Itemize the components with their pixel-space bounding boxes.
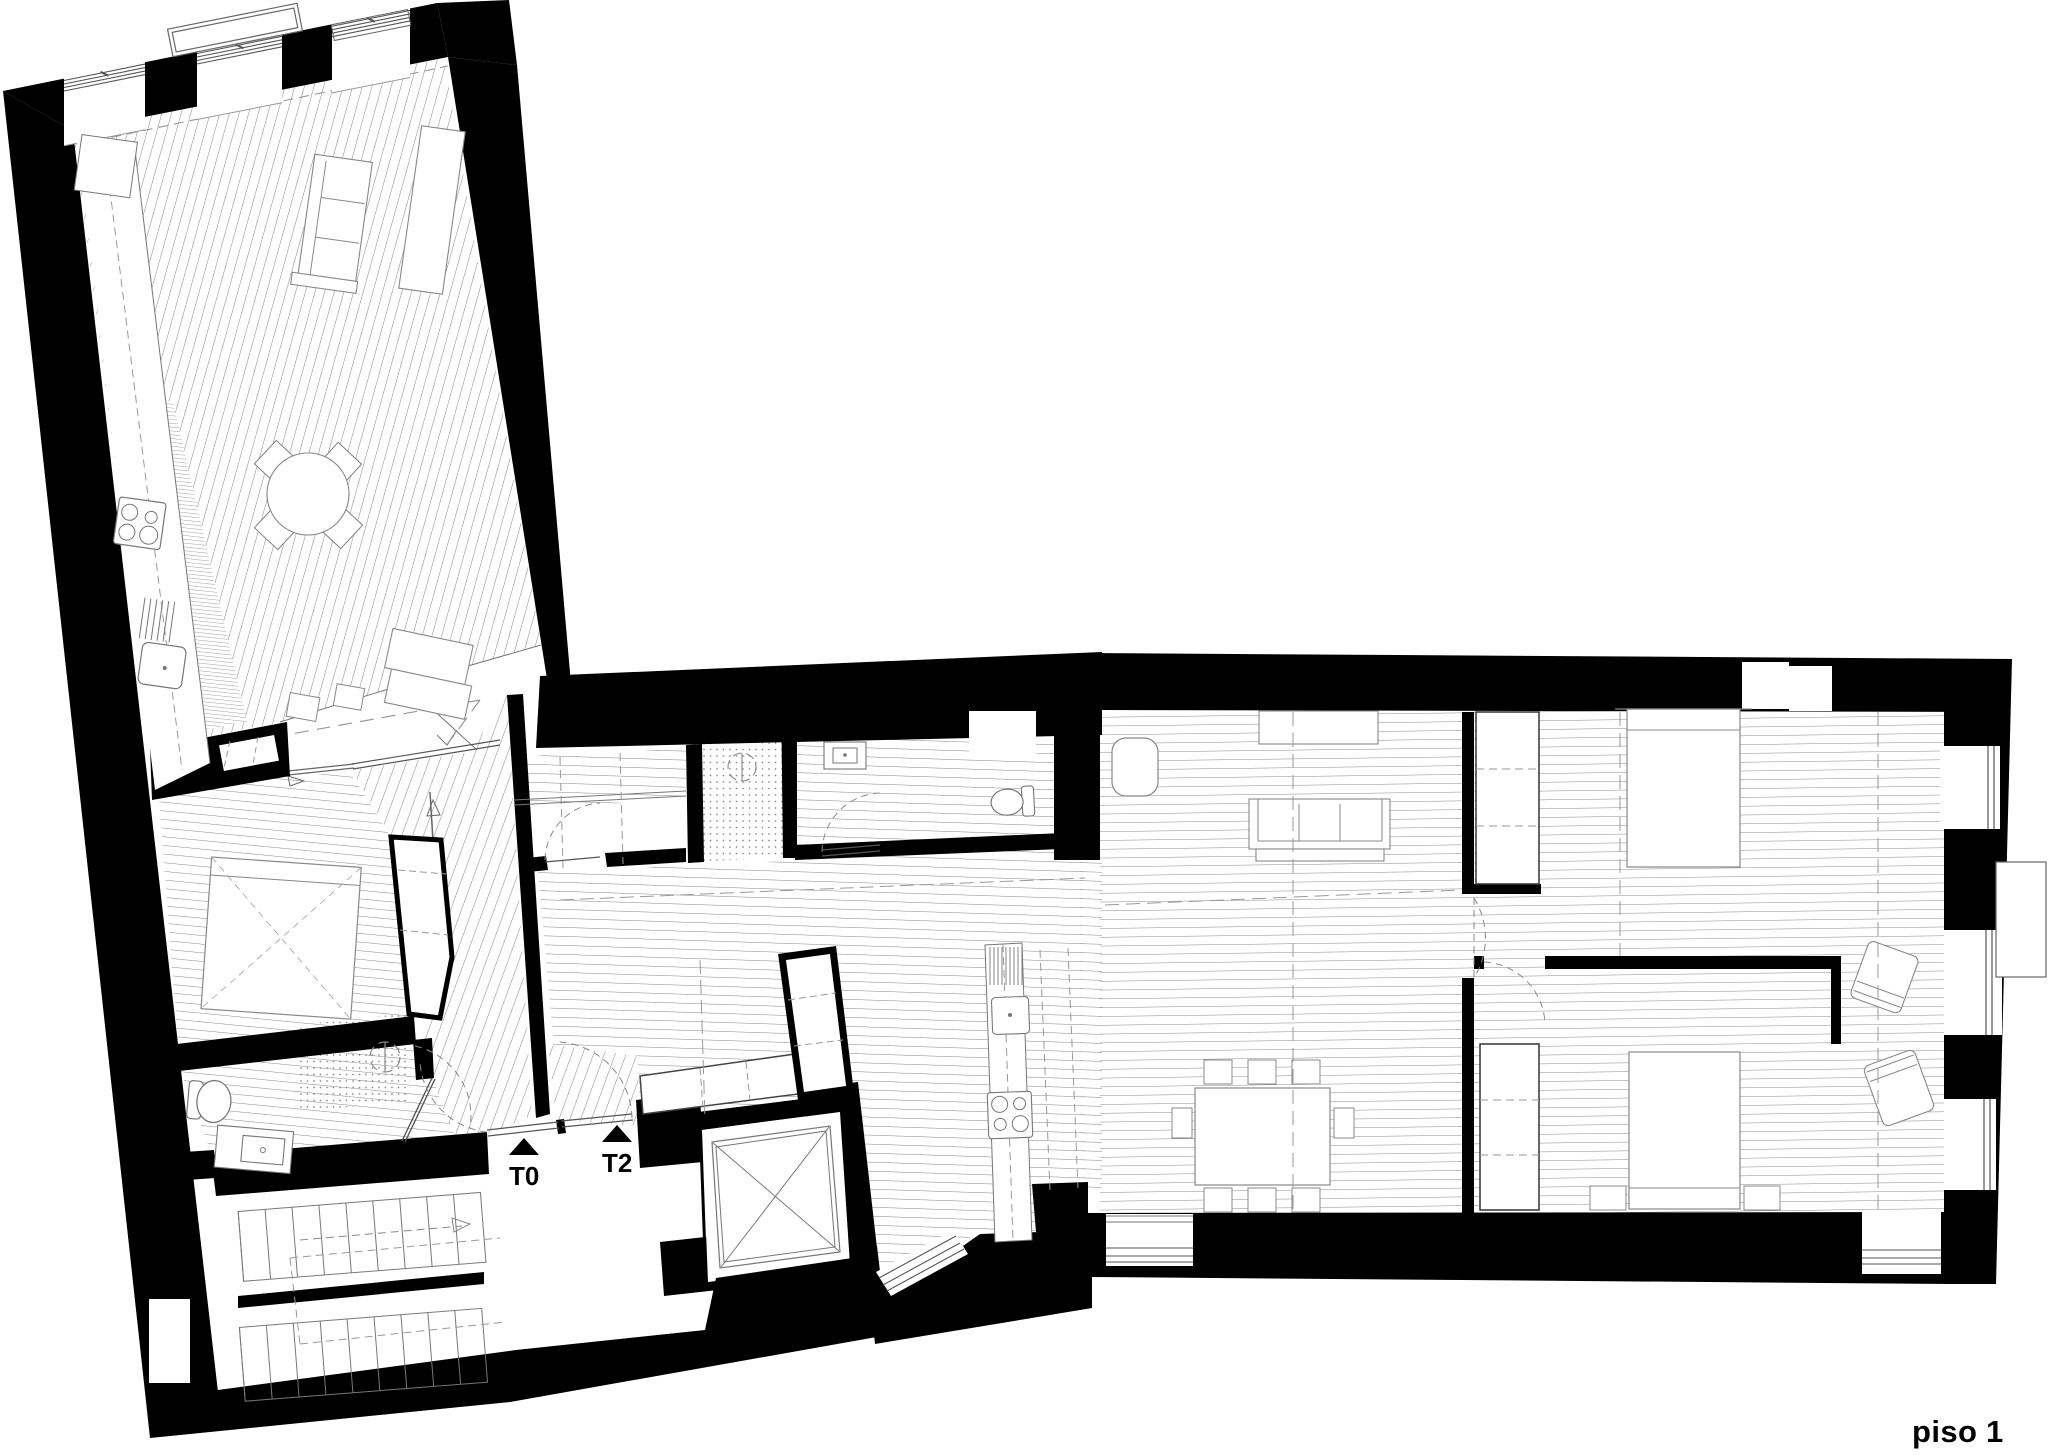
svg-text:1: 1 (1986, 1414, 2003, 1449)
svg-text:T2: T2 (602, 1148, 632, 1178)
svg-text:T0: T0 (509, 1161, 539, 1191)
svg-text:piso: piso (1912, 1414, 1977, 1449)
